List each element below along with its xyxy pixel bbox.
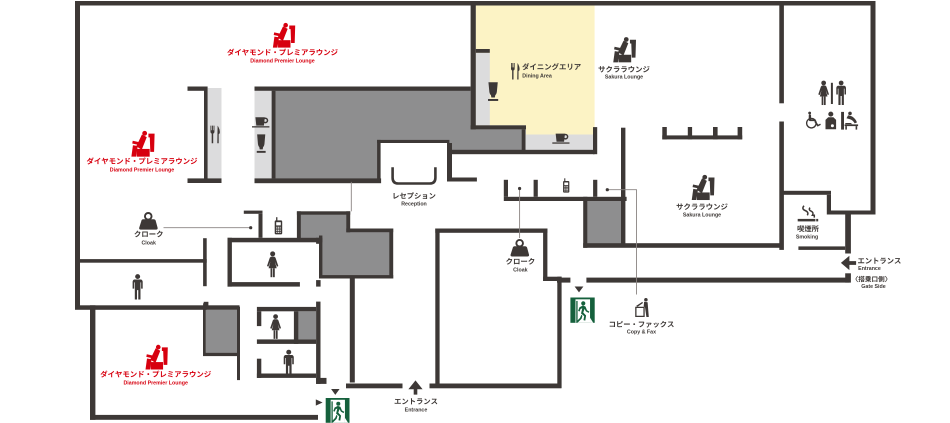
svg-text:Dining Area: Dining Area (522, 73, 552, 79)
svg-text:Cloak: Cloak (141, 240, 155, 246)
svg-text:Sakura Lounge: Sakura Lounge (683, 212, 721, 218)
svg-text:Diamond Premier Lounge: Diamond Premier Lounge (123, 381, 188, 387)
svg-text:Gate Side: Gate Side (861, 284, 885, 290)
svg-text:Diamond Premier Lounge: Diamond Premier Lounge (110, 167, 175, 173)
svg-text:Entrance: Entrance (858, 266, 881, 272)
svg-text:Diamond Premier Lounge: Diamond Premier Lounge (250, 58, 315, 64)
svg-text:Reception: Reception (401, 201, 427, 207)
svg-text:Cloak: Cloak (513, 267, 527, 273)
svg-text:Copy & Fax: Copy & Fax (627, 330, 656, 336)
svg-text:Sakura Lounge: Sakura Lounge (605, 75, 643, 81)
svg-text:Smoking: Smoking (796, 235, 818, 241)
svg-text:Entrance: Entrance (405, 407, 428, 413)
